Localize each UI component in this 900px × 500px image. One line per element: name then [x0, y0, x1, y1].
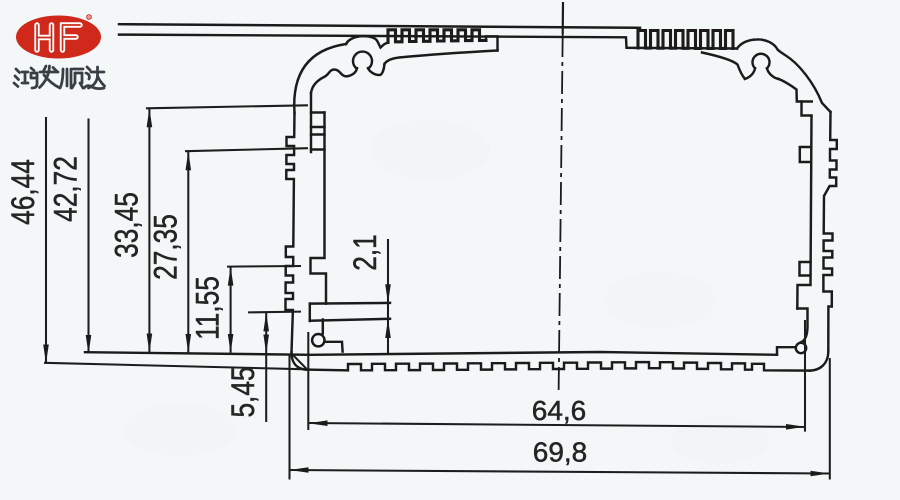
svg-text:11,55: 11,55	[191, 276, 226, 340]
svg-text:33,45: 33,45	[110, 192, 145, 258]
svg-text:2,1: 2,1	[349, 234, 384, 270]
svg-text:64,6: 64,6	[532, 395, 587, 426]
svg-text:5,45: 5,45	[227, 366, 262, 417]
svg-text:27,35: 27,35	[149, 214, 184, 280]
svg-text:46,44: 46,44	[7, 159, 42, 225]
svg-text:69,8: 69,8	[533, 437, 588, 468]
svg-text:42,72: 42,72	[49, 156, 84, 222]
